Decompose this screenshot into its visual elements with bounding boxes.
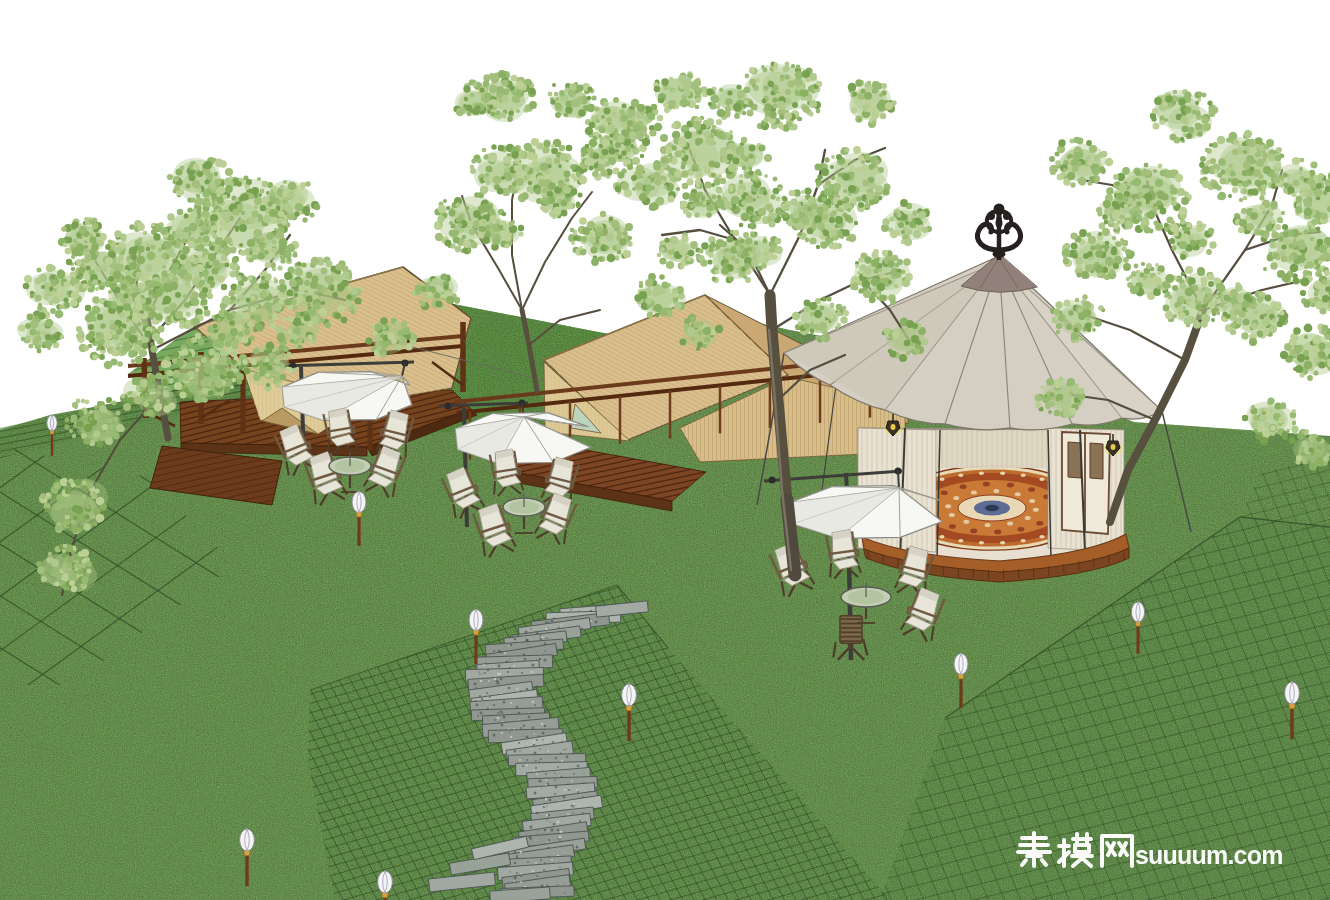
- svg-text:suuuum.com: suuuum.com: [1135, 841, 1283, 869]
